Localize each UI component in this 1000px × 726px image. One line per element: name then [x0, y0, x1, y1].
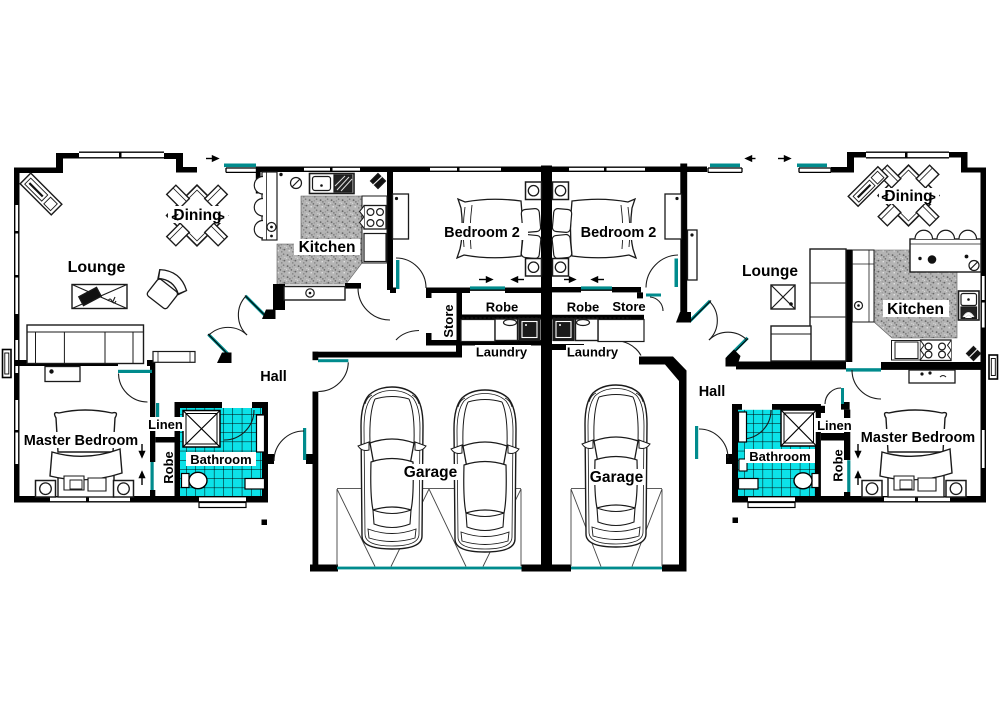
svg-text:Bedroom 2: Bedroom 2 [581, 225, 657, 241]
svg-text:Hall: Hall [699, 384, 726, 400]
svg-text:Laundry: Laundry [567, 345, 619, 360]
svg-text:<: < [881, 190, 889, 205]
svg-text:Kitchen: Kitchen [299, 239, 356, 256]
svg-text:Store: Store [612, 299, 645, 314]
svg-text:Garage: Garage [404, 464, 458, 481]
svg-text:Linen: Linen [817, 418, 852, 433]
svg-text:<: < [171, 210, 179, 225]
svg-text:Bedroom 2: Bedroom 2 [444, 225, 520, 241]
svg-text:Hall: Hall [260, 369, 287, 385]
svg-text:>: > [217, 210, 225, 225]
svg-text:Dining: Dining [884, 188, 932, 205]
svg-text:Lounge: Lounge [68, 259, 126, 276]
svg-text:Store: Store [441, 304, 456, 337]
svg-text:Lounge: Lounge [742, 263, 798, 280]
svg-text:Bathroom: Bathroom [190, 452, 251, 467]
svg-text:Bathroom: Bathroom [749, 449, 810, 464]
svg-text:Laundry: Laundry [476, 345, 528, 360]
svg-text:Linen: Linen [148, 417, 183, 432]
svg-text:>: > [928, 190, 936, 205]
svg-text:Kitchen: Kitchen [887, 301, 944, 318]
svg-text:Robe: Robe [486, 300, 519, 315]
svg-text:Robe: Robe [161, 451, 176, 484]
svg-text:Master Bedroom: Master Bedroom [24, 433, 138, 449]
svg-text:Robe: Robe [831, 449, 846, 482]
svg-text:Master Bedroom: Master Bedroom [861, 430, 975, 446]
svg-text:Robe: Robe [567, 300, 600, 315]
svg-text:Dining: Dining [173, 207, 221, 224]
svg-text:Garage: Garage [590, 469, 644, 486]
